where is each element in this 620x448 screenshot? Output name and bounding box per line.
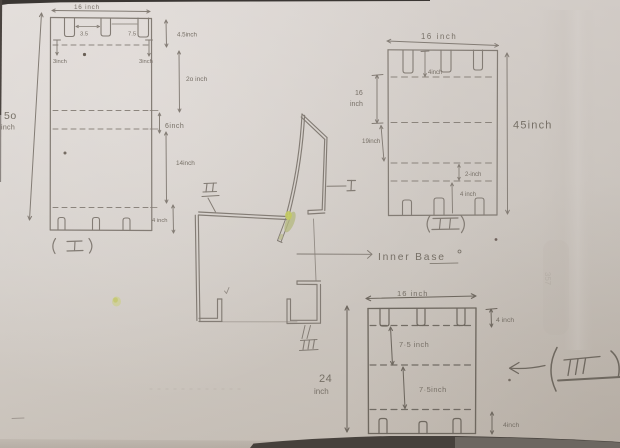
- svg-text:Inner Base: Inner Base: [378, 252, 446, 263]
- svg-text:357: 357: [543, 272, 552, 286]
- svg-text:3.5: 3.5: [80, 32, 88, 38]
- svg-text:4inch: 4inch: [503, 422, 519, 429]
- svg-text:19inch: 19inch: [362, 138, 381, 145]
- svg-text:inch: inch: [350, 101, 363, 108]
- svg-text:4inch: 4inch: [428, 70, 442, 76]
- svg-text:16: 16: [355, 90, 363, 97]
- svg-text:14inch: 14inch: [176, 160, 195, 167]
- svg-text:16 inch: 16 inch: [74, 4, 100, 11]
- svg-text:24: 24: [319, 373, 332, 385]
- svg-text:4 inch: 4 inch: [496, 317, 514, 324]
- svg-text:2o inch: 2o inch: [186, 76, 208, 83]
- svg-text:3inch: 3inch: [53, 59, 67, 65]
- svg-text:45inch: 45inch: [513, 120, 553, 132]
- svg-text:7·5inch: 7·5inch: [419, 385, 447, 394]
- svg-text:3inch: 3inch: [139, 59, 153, 65]
- svg-text:7·5 inch: 7·5 inch: [399, 340, 429, 349]
- svg-text:5o: 5o: [4, 110, 17, 122]
- svg-text:4.5inch: 4.5inch: [177, 32, 198, 39]
- svg-text:16 inch: 16 inch: [397, 289, 429, 298]
- svg-text:inch: inch: [1, 125, 15, 132]
- svg-text:7.5: 7.5: [128, 32, 136, 38]
- svg-text:4 inch: 4 inch: [152, 218, 167, 224]
- svg-text:2-inch: 2-inch: [465, 172, 481, 178]
- svg-text:4 inch: 4 inch: [460, 192, 476, 198]
- svg-text:inch: inch: [314, 387, 329, 396]
- svg-text:6inch: 6inch: [165, 123, 184, 130]
- svg-text:16 inch: 16 inch: [421, 32, 457, 41]
